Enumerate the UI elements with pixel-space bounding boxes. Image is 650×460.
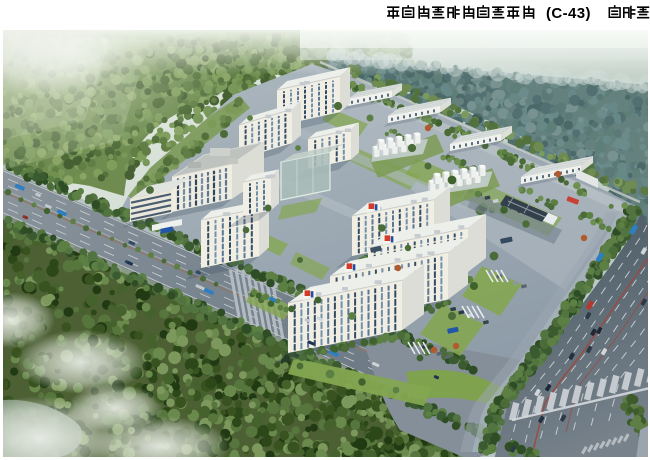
svg-text:(C-43): (C-43) [546, 5, 591, 22]
